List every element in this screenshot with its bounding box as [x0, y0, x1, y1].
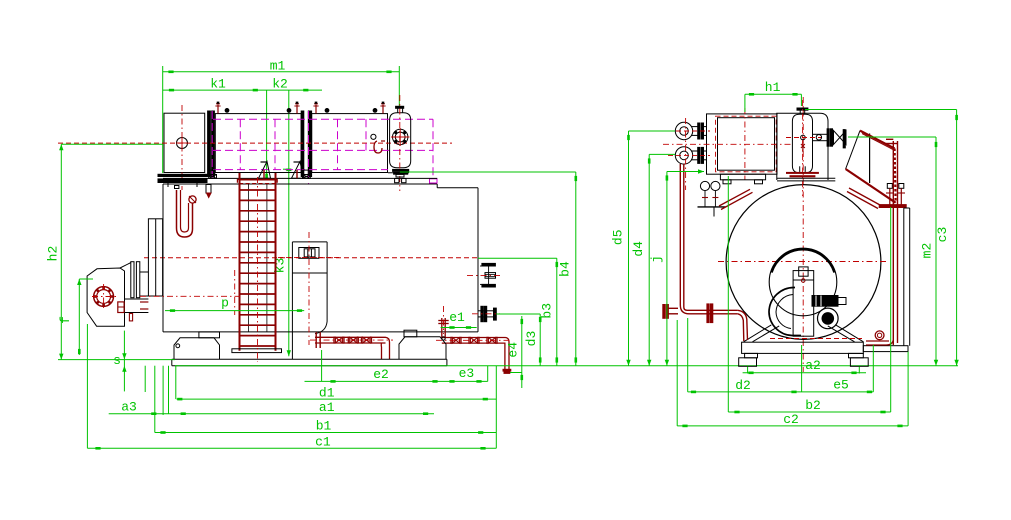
svg-text:j: j: [649, 255, 664, 263]
svg-text:m1: m1: [270, 59, 286, 74]
svg-text:d4: d4: [631, 241, 646, 257]
svg-text:a2: a2: [805, 358, 821, 373]
svg-text:c2: c2: [783, 412, 799, 427]
svg-text:d3: d3: [524, 331, 539, 347]
svg-text:e4: e4: [506, 342, 521, 358]
svg-text:c3: c3: [935, 227, 950, 243]
svg-text:e1: e1: [449, 310, 465, 325]
svg-text:m2: m2: [920, 243, 935, 259]
svg-text:e3: e3: [459, 366, 475, 381]
svg-text:d5: d5: [611, 229, 626, 245]
svg-text:k2: k2: [272, 77, 288, 92]
svg-text:b4: b4: [557, 261, 572, 277]
svg-text:h2: h2: [46, 246, 61, 262]
svg-text:f: f: [58, 316, 73, 324]
svg-text:e2: e2: [373, 367, 389, 382]
svg-text:s: s: [113, 353, 121, 368]
svg-text:d1: d1: [319, 385, 335, 400]
svg-text:c1: c1: [315, 434, 331, 449]
svg-text:p: p: [221, 296, 229, 311]
svg-text:e5: e5: [833, 378, 849, 393]
svg-text:d2: d2: [735, 378, 751, 393]
svg-text:k1: k1: [210, 77, 226, 92]
svg-text:a3: a3: [121, 400, 137, 415]
svg-text:a1: a1: [319, 400, 335, 415]
svg-text:b3: b3: [540, 303, 555, 319]
svg-text:h1: h1: [765, 80, 781, 95]
svg-text:b2: b2: [805, 398, 821, 413]
svg-text:b1: b1: [316, 419, 332, 434]
